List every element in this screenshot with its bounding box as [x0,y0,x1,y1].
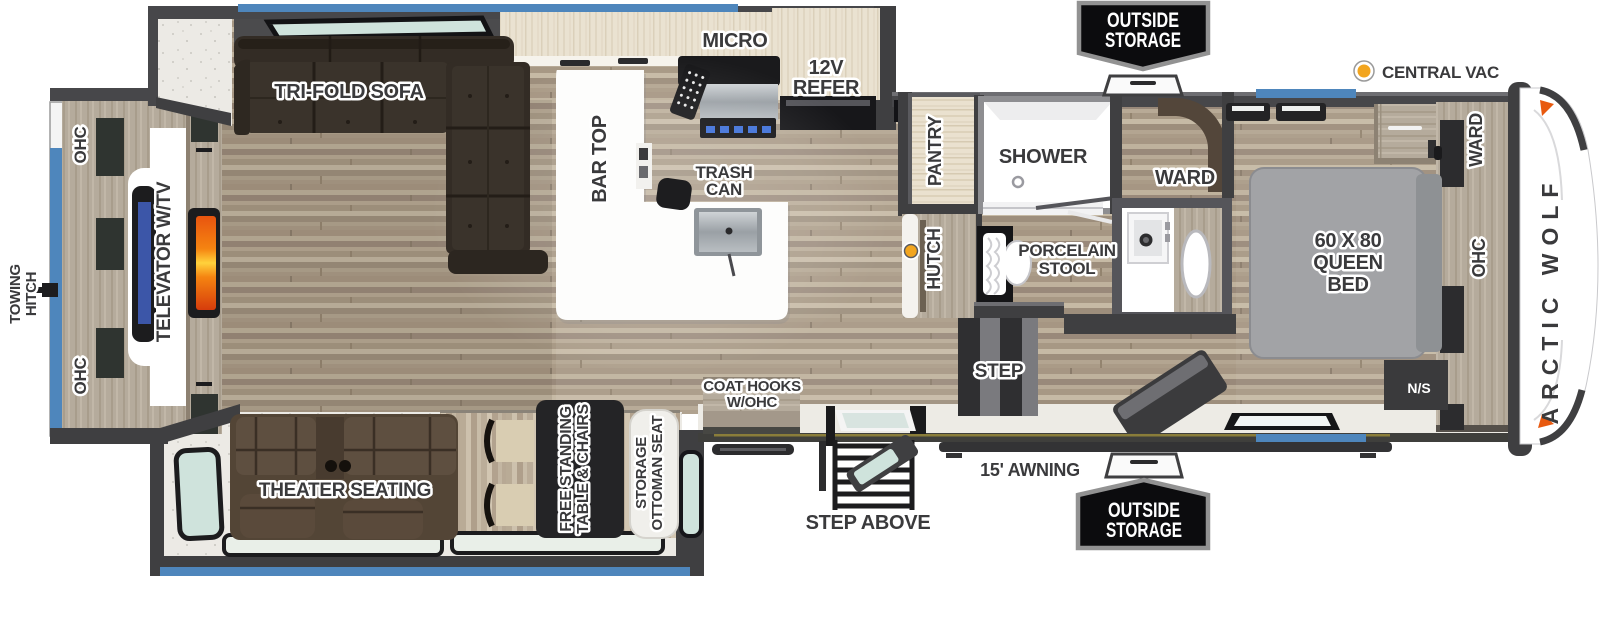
svg-text:HUTCH: HUTCH [924,228,944,290]
svg-text:CAN: CAN [706,180,742,199]
svg-text:THEATER SEATING: THEATER SEATING [259,480,431,501]
svg-text:STEP ABOVE: STEP ABOVE [806,512,931,534]
svg-text:TELEVATOR W/TV: TELEVATOR W/TV [154,181,175,342]
svg-text:TABLE & CHAIRS: TABLE & CHAIRS [575,404,592,534]
svg-text:STEP: STEP [975,361,1024,382]
svg-text:STORAGE: STORAGE [1105,29,1181,52]
svg-text:WARD: WARD [1155,167,1215,189]
svg-text:60 X 80: 60 X 80 [1315,230,1382,252]
svg-text:QUEEN: QUEEN [1313,252,1383,274]
svg-text:REFER: REFER [793,77,860,99]
svg-text:HITCH: HITCH [23,272,40,316]
svg-text:CENTRAL VAC: CENTRAL VAC [1382,63,1499,82]
svg-text:SHOWER: SHOWER [999,146,1088,168]
svg-text:MICRO: MICRO [702,30,767,52]
svg-text:OHC: OHC [71,127,90,164]
svg-text:OTTOMAN SEAT: OTTOMAN SEAT [649,415,666,530]
svg-text:W/OHC: W/OHC [727,394,778,411]
svg-text:12V: 12V [809,57,845,79]
svg-text:TOWING: TOWING [7,264,24,324]
svg-text:STOOL: STOOL [1039,259,1096,278]
svg-text:BED: BED [1327,274,1368,296]
svg-text:N/S: N/S [1407,380,1430,396]
svg-text:ARCTIC WOLF: ARCTIC WOLF [1537,176,1563,425]
svg-text:FREE STANDING: FREE STANDING [558,406,575,532]
svg-text:WARD: WARD [1466,113,1486,167]
svg-text:STORAGE: STORAGE [633,437,650,509]
svg-text:BAR TOP: BAR TOP [589,115,611,203]
svg-text:15' AWNING: 15' AWNING [980,460,1080,480]
svg-text:OHC: OHC [1469,238,1489,277]
svg-text:STORAGE: STORAGE [1106,519,1182,542]
svg-text:PANTRY: PANTRY [925,116,945,186]
svg-text:COAT HOOKS: COAT HOOKS [703,378,801,395]
svg-text:TRI-FOLD SOFA: TRI-FOLD SOFA [274,81,423,103]
svg-text:OHC: OHC [71,358,90,395]
svg-text:PORCELAIN: PORCELAIN [1018,241,1115,260]
